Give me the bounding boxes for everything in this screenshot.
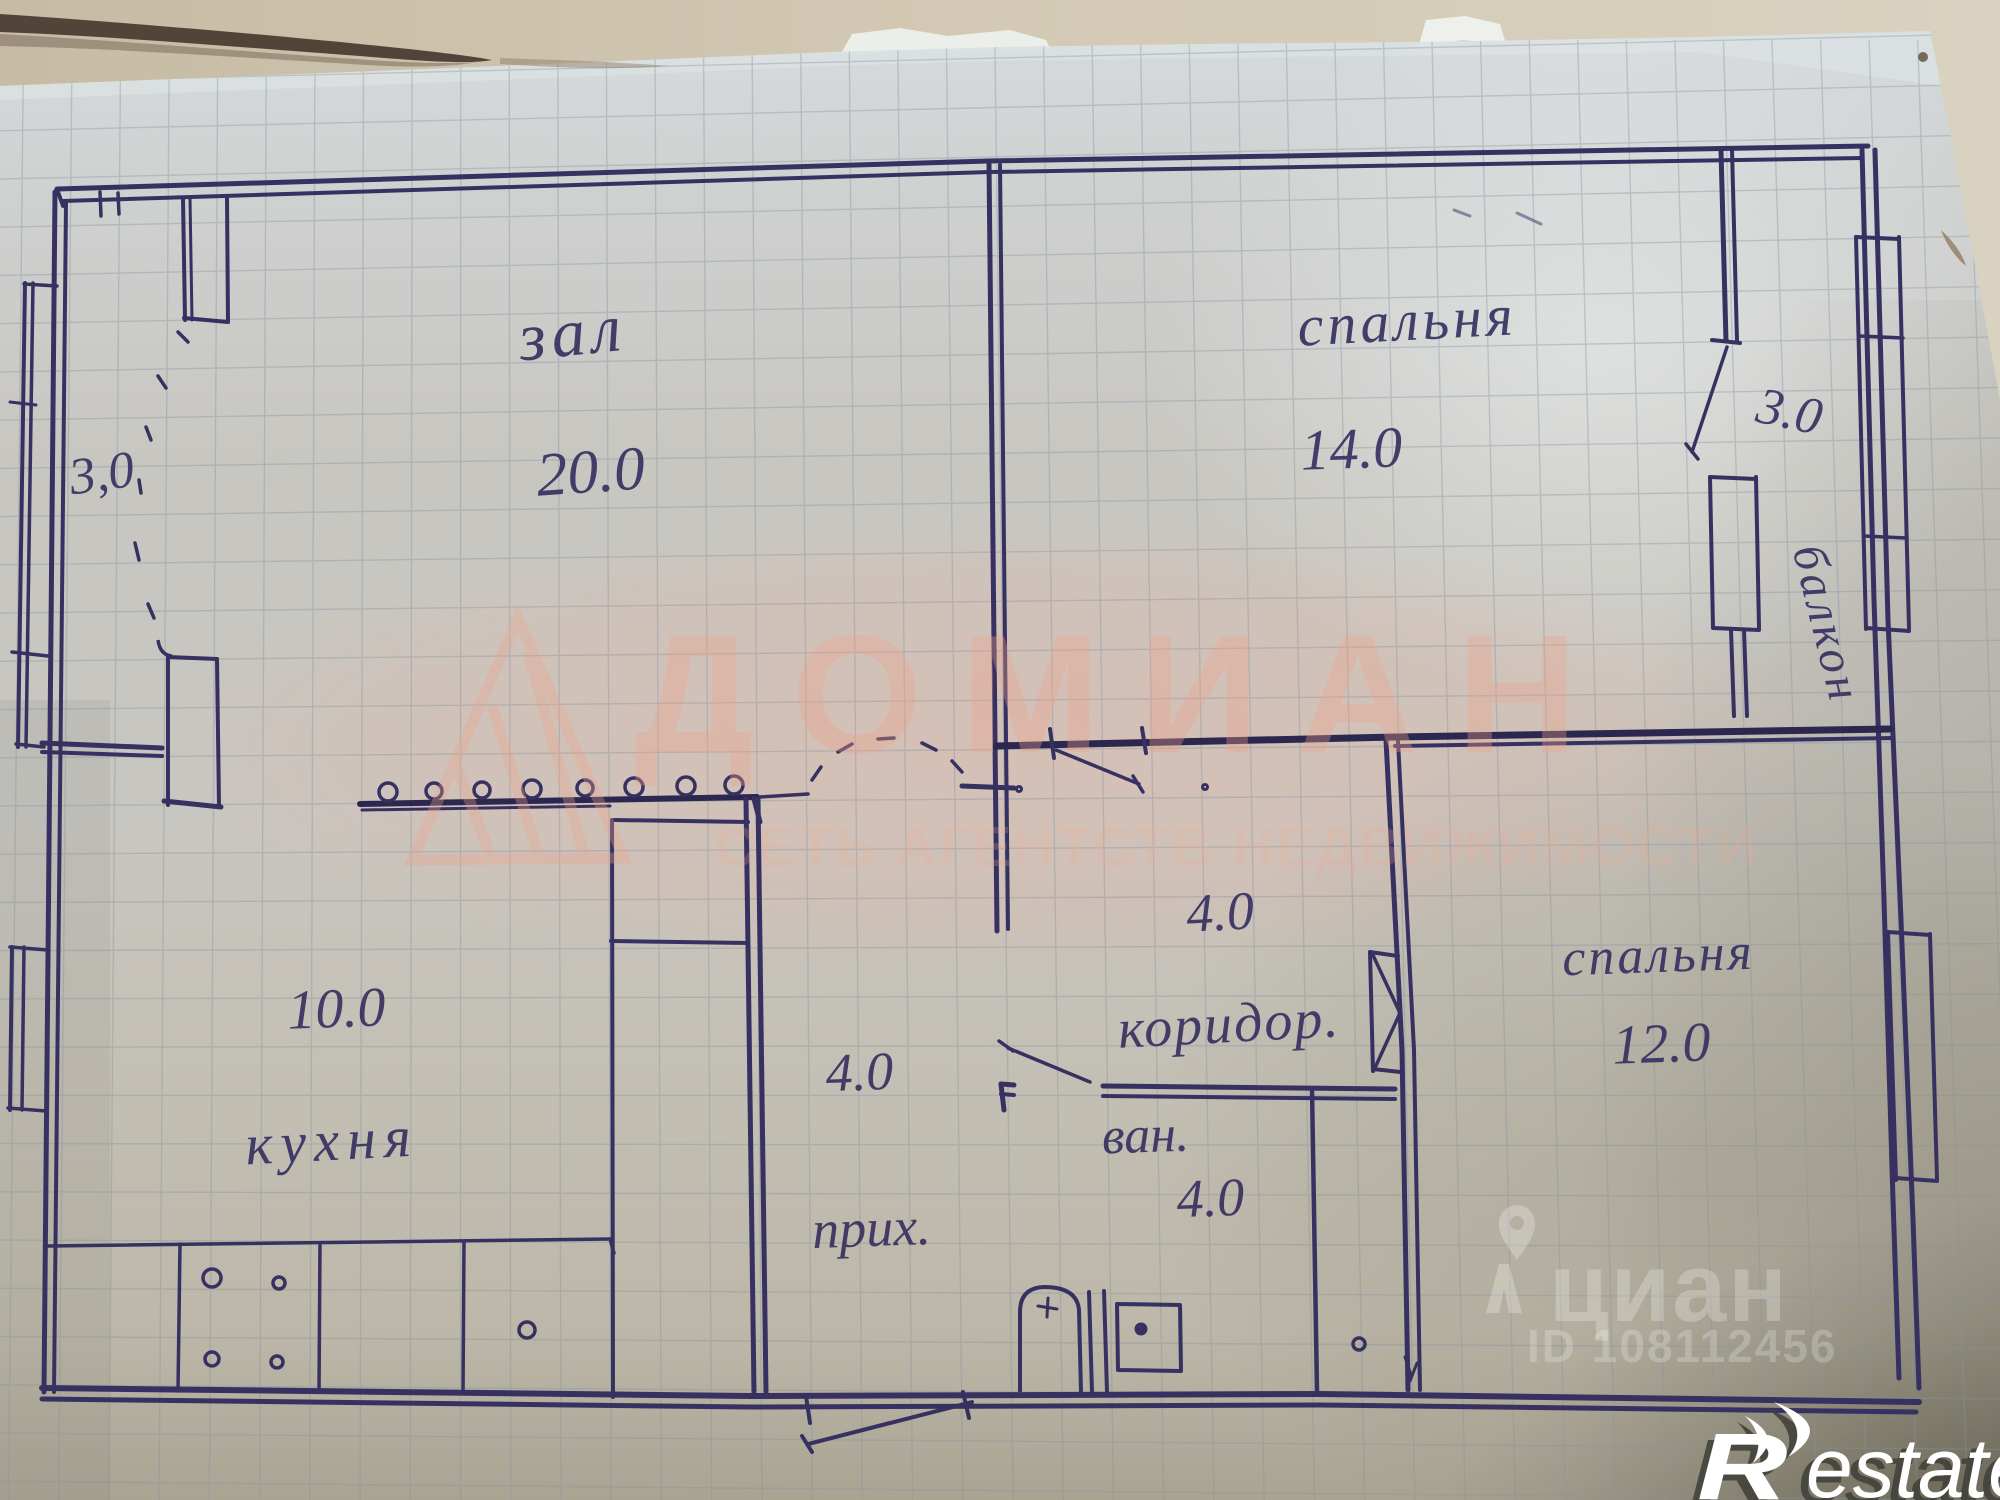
svg-text:прих.: прих. (811, 1196, 931, 1260)
svg-text:СЕТЬ АГЕНТСТВ НЕДВИЖИМОСТИ: СЕТЬ АГЕНТСТВ НЕДВИЖИМОСТИ (715, 815, 1759, 879)
svg-text:коридор.: коридор. (1116, 987, 1341, 1061)
svg-text:кухня: кухня (244, 1104, 421, 1178)
svg-text:R: R (1697, 1413, 1788, 1500)
svg-text:3,0: 3,0 (65, 441, 138, 507)
svg-text:ДОМИАН: ДОМИАН (634, 600, 1616, 788)
svg-text:ID 108112456: ID 108112456 (1527, 1320, 1838, 1372)
svg-text:10.0: 10.0 (286, 976, 386, 1041)
svg-text:спальня: спальня (1296, 282, 1518, 358)
svg-text:спальня: спальня (1561, 924, 1755, 988)
svg-text:зал: зал (514, 289, 631, 376)
svg-text:4.0: 4.0 (825, 1041, 895, 1103)
svg-text:20.0: 20.0 (534, 434, 647, 509)
svg-text:4.0: 4.0 (1185, 880, 1256, 943)
svg-text:ван.: ван. (1101, 1106, 1190, 1166)
svg-text:4.0: 4.0 (1176, 1167, 1246, 1229)
svg-text:estate: estate (1806, 1421, 2000, 1500)
svg-text:12.0: 12.0 (1611, 1011, 1711, 1076)
svg-text:14.0: 14.0 (1299, 414, 1403, 483)
